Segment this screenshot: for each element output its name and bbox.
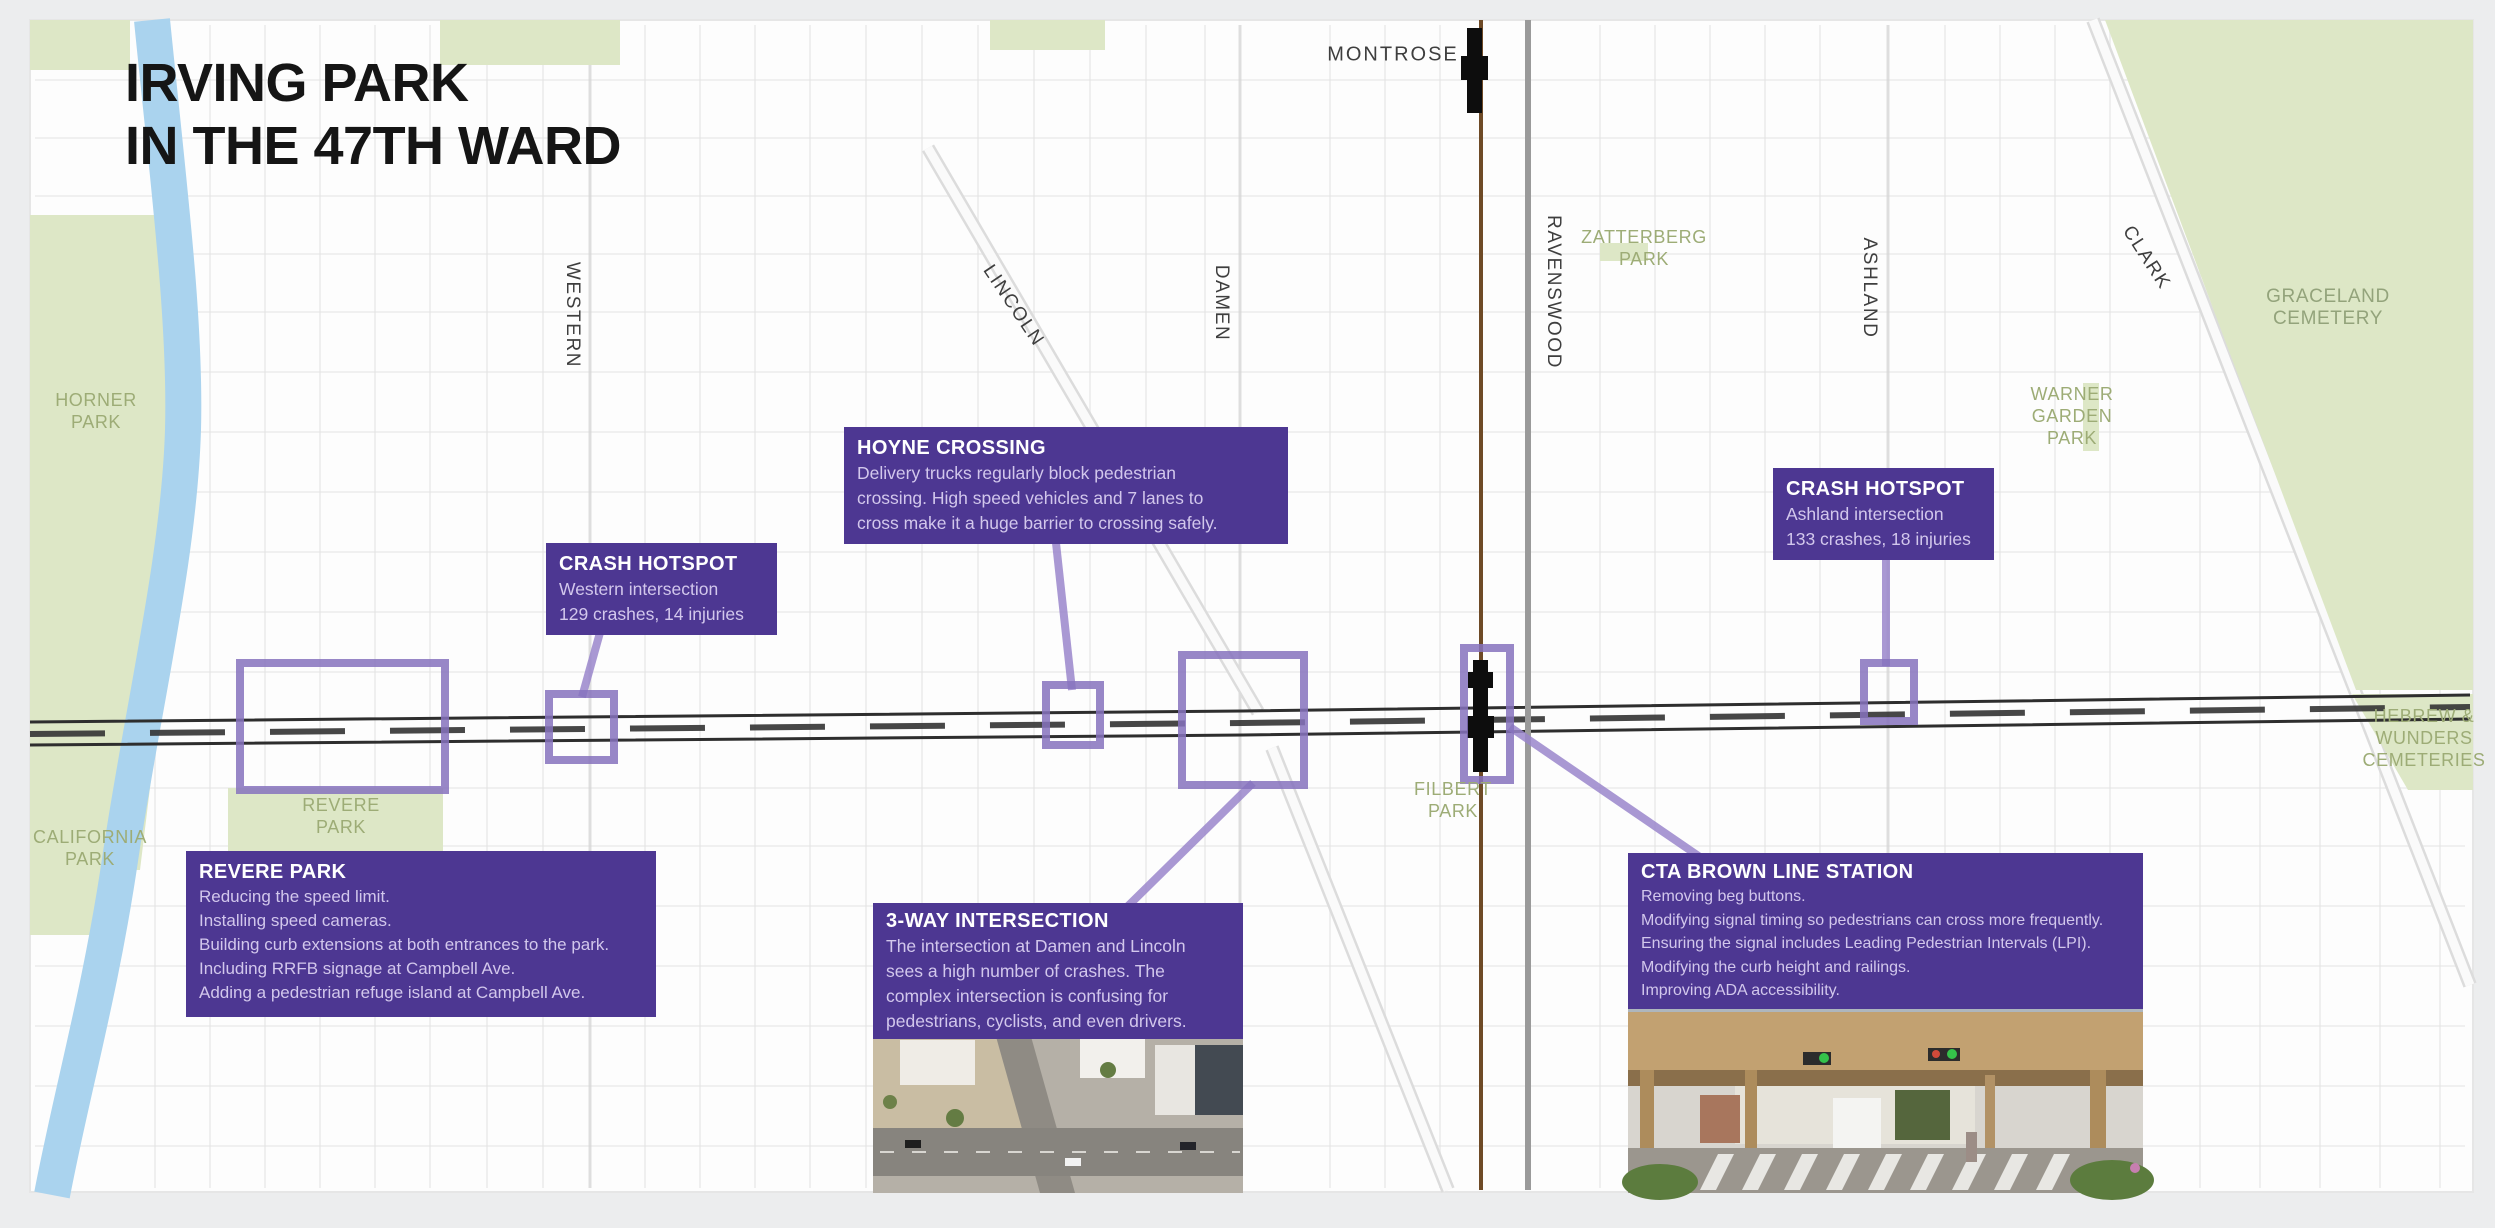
callout-title: CRASH HOTSPOT [1786,476,1981,502]
callout-line: Removing beg buttons. [1641,885,2130,909]
callout-line: Modifying signal timing so pedestrians c… [1641,909,2130,933]
place-label-warner-garden-park: WARNER GARDEN PARK [2031,383,2114,449]
place-label-graceland-cemetery: GRACELAND CEMETERY [2266,286,2390,330]
callout-revere-park: REVERE PARK Reducing the speed limit. In… [186,851,656,1017]
callout-title: HOYNE CROSSING [857,435,1275,461]
callout-line: Adding a pedestrian refuge island at Cam… [199,981,643,1005]
callout-line: Installing speed cameras. [199,909,643,933]
callout-line: Modifying the curb height and railings. [1641,956,2130,980]
callout-hoyne-crossing: HOYNE CROSSING Delivery trucks regularly… [844,427,1288,544]
callout-title: REVERE PARK [199,859,643,885]
three-way-intersection-photo [873,1033,1243,1193]
callout-line: The intersection at Damen and Lincoln [886,934,1230,959]
callout-line: Western intersection [559,577,764,602]
callout-line: complex intersection is confusing for [886,984,1230,1009]
callout-line: pedestrians, cyclists, and even drivers. [886,1009,1230,1034]
place-label-hebrew-wunders-cemeteries: HEBREW & WUNDERS CEMETERIES [2362,705,2485,771]
place-label-filbert-park: FILBERT PARK [1414,778,1492,822]
street-label-damen: DAMEN [1210,265,1232,342]
park-patch-top-left [30,20,130,70]
callout-line: Reducing the speed limit. [199,885,643,909]
callout-cta-brown-line-station: CTA BROWN LINE STATION Removing beg butt… [1628,853,2143,1009]
pedestrian-figure [1966,1132,1977,1162]
callout-title: CTA BROWN LINE STATION [1641,859,2130,885]
place-label-california-park: CALIFORNIA PARK [33,826,147,870]
callout-line: 133 crashes, 18 injuries [1786,527,1981,552]
street-label-ashland: ASHLAND [1858,238,1880,339]
street-label-montrose: MONTROSE [1327,44,1459,67]
callout-line: Ashland intersection [1786,502,1981,527]
callout-line: sees a high number of crashes. The [886,959,1230,984]
place-label-revere-park: REVERE PARK [302,794,380,838]
callout-three-way-intersection: 3-WAY INTERSECTION The intersection at D… [873,903,1243,1039]
callout-title: 3-WAY INTERSECTION [886,908,1230,934]
callout-crash-hotspot-ashland: CRASH HOTSPOT Ashland intersection 133 c… [1773,468,1994,560]
callout-line: Building curb extensions at both entranc… [199,933,643,957]
callout-line: Improving ADA accessibility. [1641,979,2130,1003]
park-patch-top-2 [990,20,1105,50]
callout-crash-hotspot-western: CRASH HOTSPOT Western intersection 129 c… [546,543,777,635]
place-label-zatterberg-park: ZATTERBERG PARK [1581,226,1707,270]
street-label-ravenswood: RAVENSWOOD [1542,215,1564,369]
callout-line: Ensuring the signal includes Leading Ped… [1641,932,2130,956]
callout-line: 129 crashes, 14 injuries [559,602,764,627]
callout-line: cross make it a huge barrier to crossing… [857,511,1275,536]
callout-line: Delivery trucks regularly block pedestri… [857,461,1275,486]
callout-line: crossing. High speed vehicles and 7 lane… [857,486,1275,511]
base-map [0,0,2495,1228]
callout-title: CRASH HOTSPOT [559,551,764,577]
street-label-western: WESTERN [561,262,583,368]
irving-park-map-infographic: IRVING PARK IN THE 47TH WARD MONTROSE WE… [0,0,2495,1228]
place-label-horner-park: HORNER PARK [55,389,137,433]
page-title: IRVING PARK IN THE 47TH WARD [125,52,621,178]
callout-line: Including RRFB signage at Campbell Ave. [199,957,643,981]
cta-station-photo [1622,1005,2154,1200]
